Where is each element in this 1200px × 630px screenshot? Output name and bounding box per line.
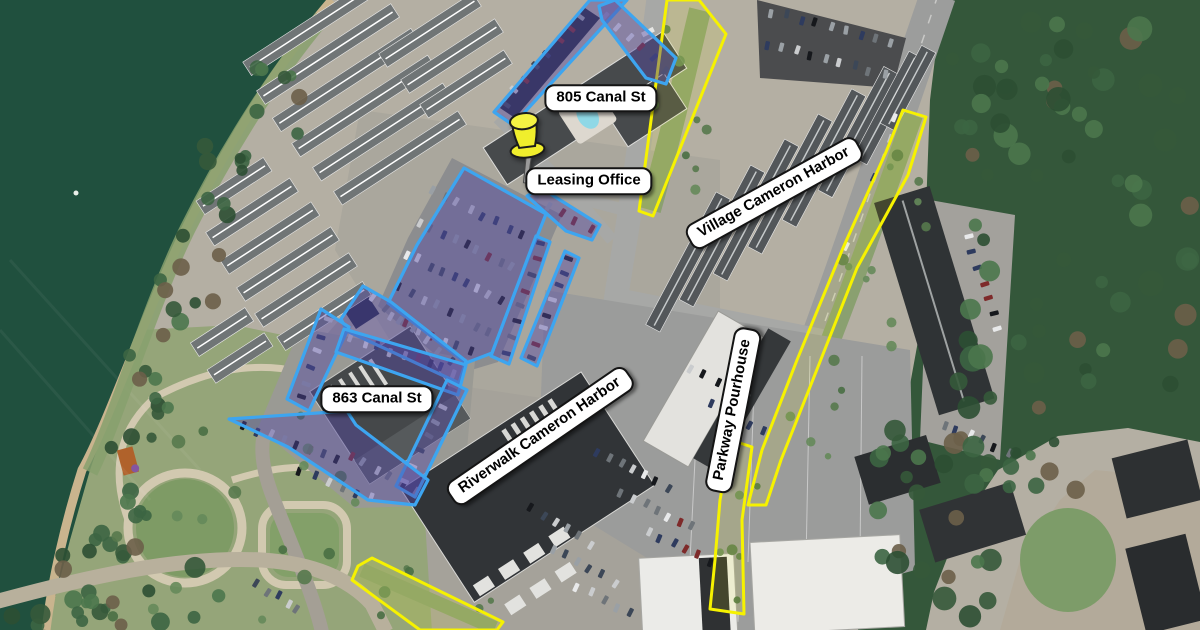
leasing-office-pin[interactable] — [500, 106, 554, 192]
annotation-overlay — [0, 0, 1200, 630]
parcel-canal863-west-strip — [287, 309, 349, 411]
pin-needle — [520, 156, 534, 184]
boundary-canal-street-verge — [639, 0, 726, 216]
parcel-canal863-south-lot — [229, 411, 428, 505]
boundary-parkway-verge-south — [710, 442, 752, 614]
boundary-parkway-verge-north — [748, 110, 926, 505]
boundary-broad-street-verge — [352, 558, 503, 630]
map-canvas: 805 Canal St Leasing Office 863 Canal St… — [0, 0, 1200, 630]
